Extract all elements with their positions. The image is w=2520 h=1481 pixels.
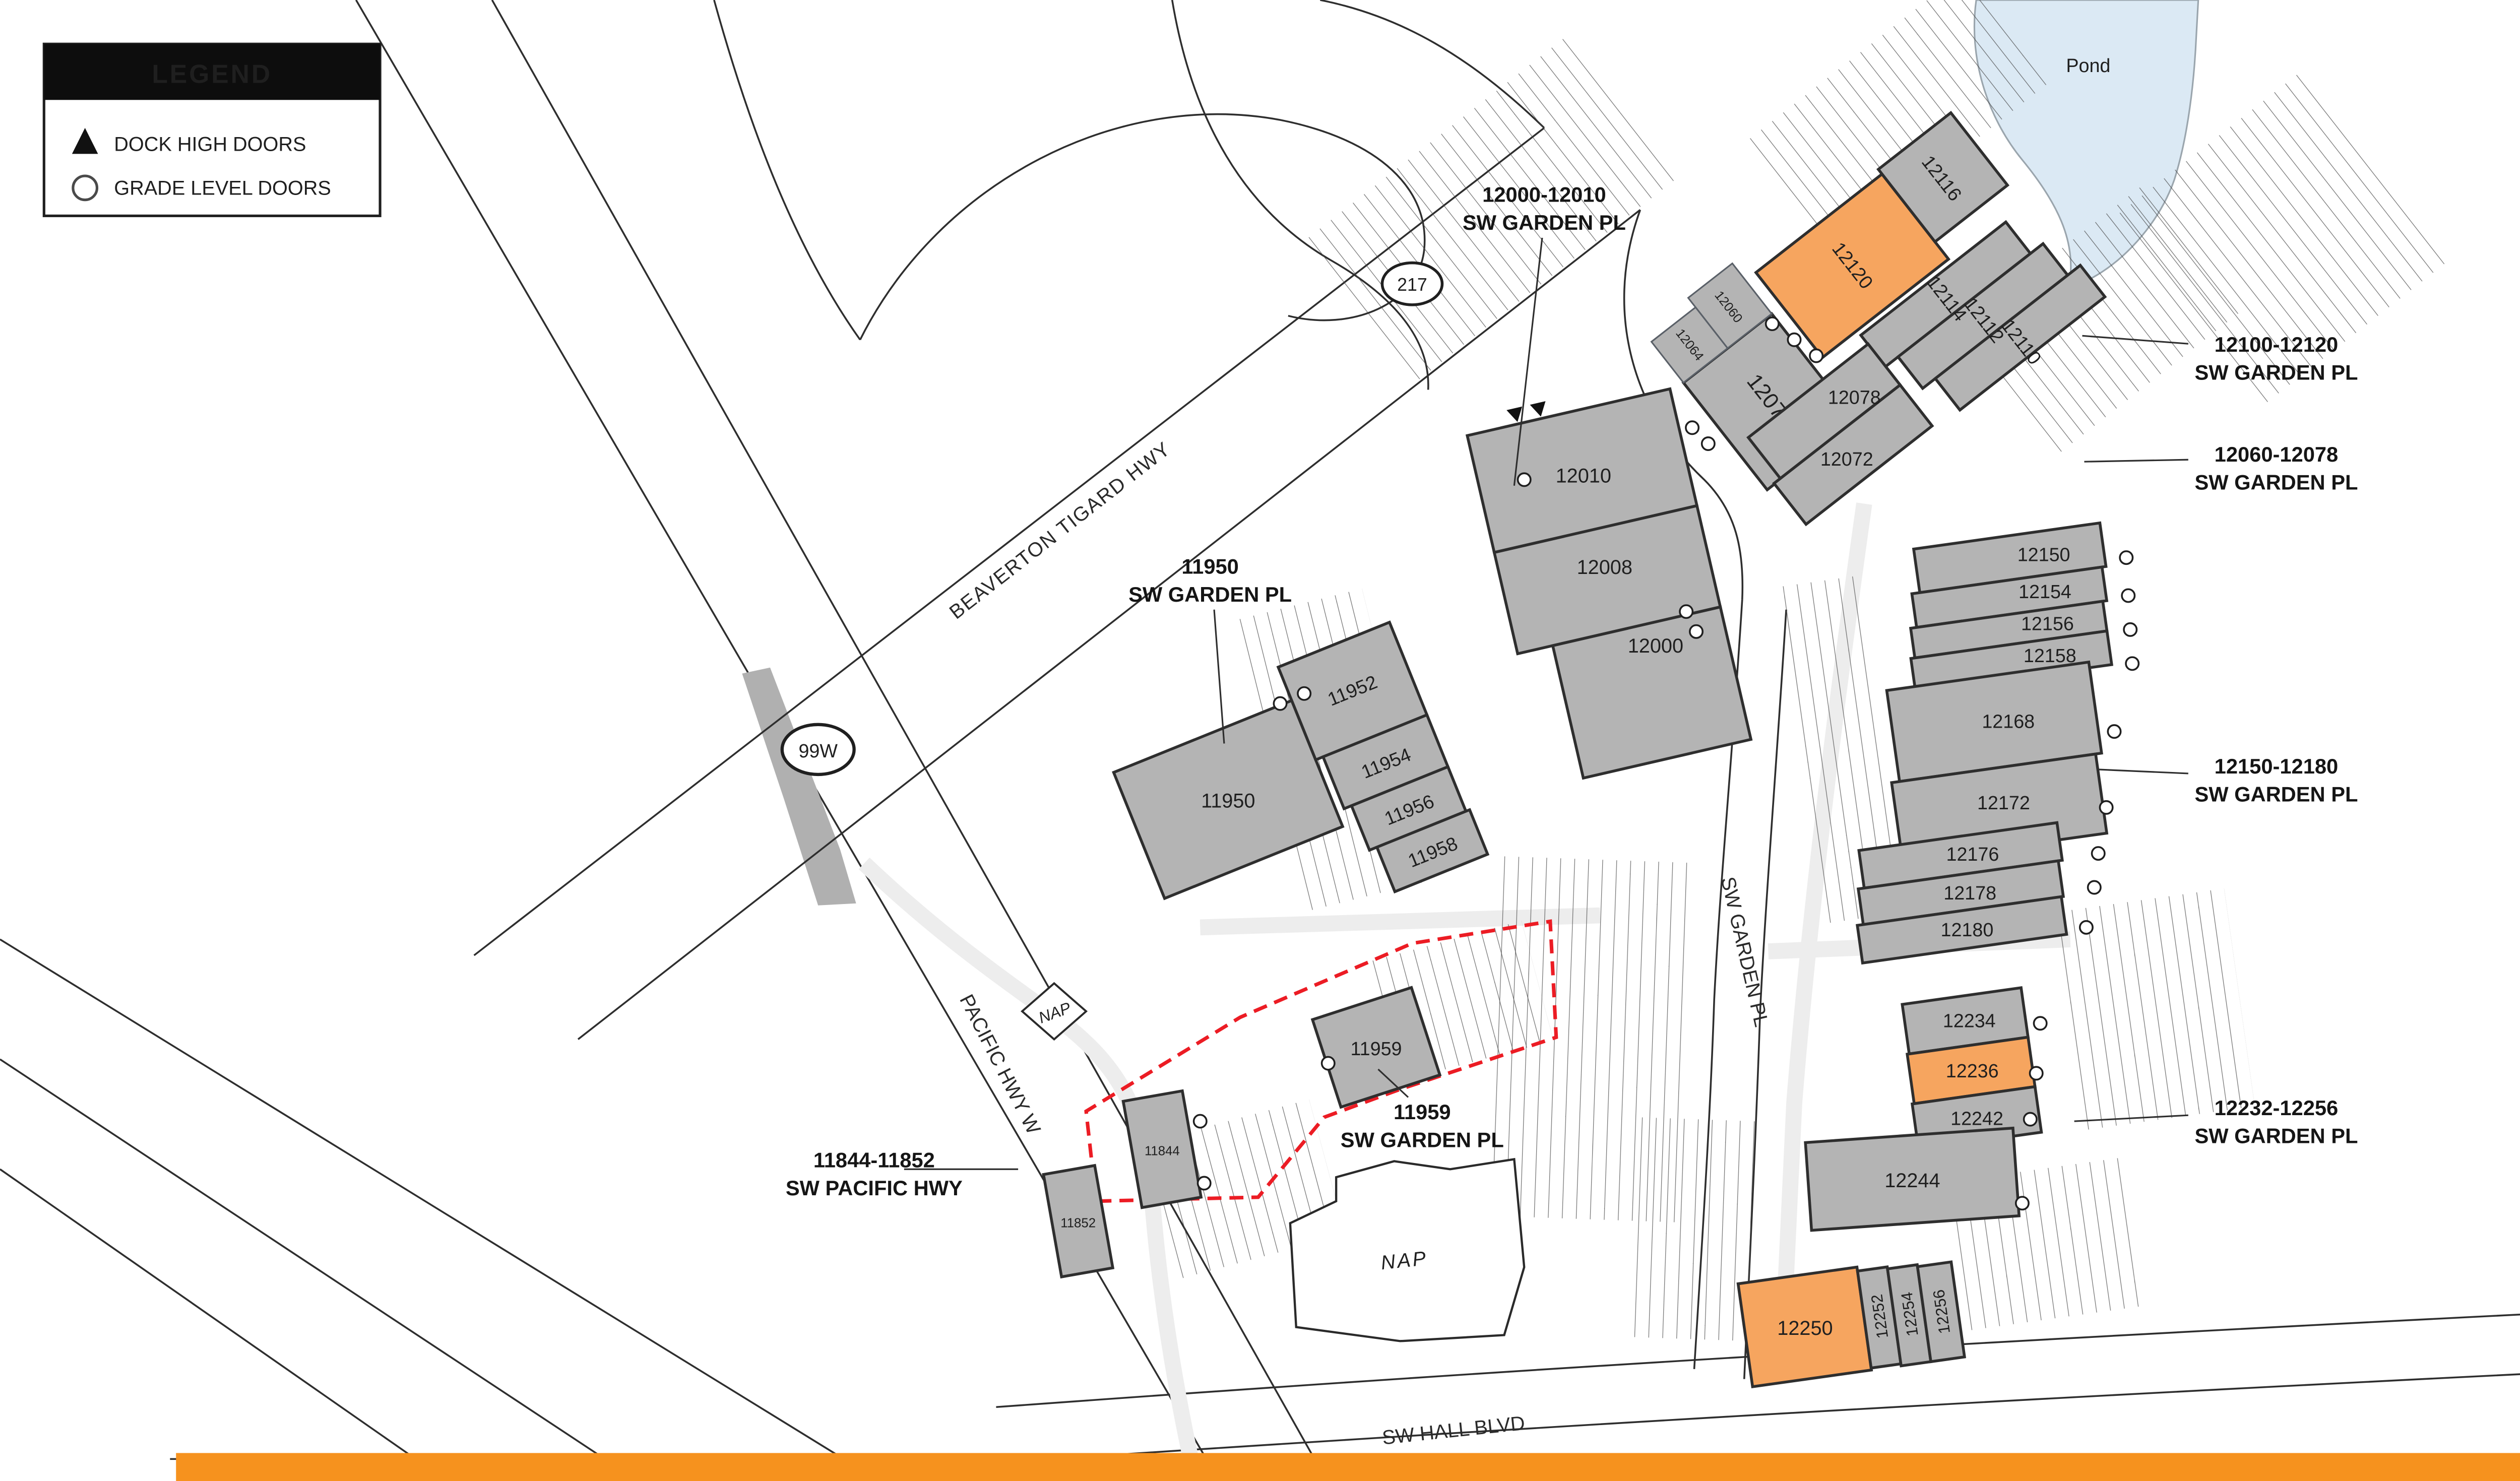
grade-level-door-icon <box>2030 1067 2042 1079</box>
unit-label: 11852 <box>1060 1216 1096 1230</box>
unit-label: 12078 <box>1828 387 1881 408</box>
parking-lot <box>1632 1117 1756 1341</box>
unit-label: 12010 <box>1556 465 1611 487</box>
grade-level-door-icon <box>1702 437 1715 450</box>
grade-level-door-icon <box>1788 334 1800 346</box>
shield-217-label: 217 <box>1397 275 1427 295</box>
grade-level-door-icon <box>1194 1115 1207 1127</box>
address-label: 12000-12010 <box>1482 183 1606 207</box>
legend-item-label: DOCK HIGH DOORS <box>114 133 306 155</box>
grade-level-door-icon <box>1766 317 1779 330</box>
unit-label: 12154 <box>2019 581 2071 602</box>
address-label: 12060-12078 <box>2215 442 2339 466</box>
unit-label: 12008 <box>1577 556 1632 578</box>
grade-level-door-icon <box>1298 687 1310 700</box>
unit-label: 11950 <box>1201 790 1255 812</box>
unit-label: 12180 <box>1940 919 1993 940</box>
shield-99w-label: 99W <box>798 740 838 761</box>
grade-level-door-icon <box>2122 589 2134 602</box>
unit-label: 11959 <box>1350 1038 1402 1059</box>
grade-level-door-icon <box>1690 625 1703 638</box>
highway-shield-217: 217 <box>1382 263 1442 305</box>
grade-level-door-icon <box>2034 1017 2046 1029</box>
grade-level-door-icon <box>2108 725 2120 738</box>
grade-level-door-icon <box>2120 551 2132 564</box>
grade-level-door-icon <box>2126 657 2138 670</box>
grade-level-circle-icon <box>73 176 97 200</box>
unit-label: 12242 <box>1950 1108 2003 1129</box>
unit-label: 11844 <box>1145 1144 1180 1158</box>
footer-accent-bar <box>176 1453 2520 1481</box>
unit-label: 12176 <box>1946 844 1999 865</box>
grade-level-door-icon <box>2080 921 2093 934</box>
grade-level-door-icon <box>2124 623 2136 636</box>
address-label: SW GARDEN PL <box>2194 471 2358 494</box>
unit-label: 12236 <box>1946 1060 1999 1081</box>
grade-level-door-icon <box>2024 1113 2037 1125</box>
address-label: SW PACIFIC HWY <box>786 1176 963 1200</box>
unit-label: 12172 <box>1977 792 2030 813</box>
unit-label: 12178 <box>1943 882 1996 904</box>
legend-item-label: GRADE LEVEL DOORS <box>114 177 331 200</box>
grade-level-door-icon <box>1274 697 1286 710</box>
building-12234-cluster: 12234 12236 12242 <box>1898 988 2041 1149</box>
grade-level-door-icon <box>2088 881 2101 893</box>
unit-label: 12158 <box>2024 645 2076 666</box>
address-label: SW GARDEN PL <box>1463 211 1626 234</box>
address-label: SW GARDEN PL <box>1341 1128 1504 1152</box>
site-plan-map: Pond NAP NAP 12120 12116 12114 1 <box>0 0 2520 1481</box>
address-label: SW GARDEN PL <box>1128 583 1292 606</box>
highway-shield-99w: 99W <box>782 725 854 775</box>
address-label: SW GARDEN PL <box>2194 782 2358 806</box>
grade-level-door-icon <box>1518 473 1530 486</box>
unit-label: 12150 <box>2018 544 2070 565</box>
address-label: 12232-12256 <box>2215 1096 2339 1120</box>
unit-label: 12156 <box>2021 613 2074 634</box>
grade-level-door-icon <box>2016 1197 2029 1209</box>
unit-label: 12244 <box>1884 1170 1940 1192</box>
address-label: 12150-12180 <box>2215 754 2339 778</box>
unit-label: 12072 <box>1820 448 1873 470</box>
unit-label: 12250 <box>1777 1317 1833 1339</box>
address-label: 11959 <box>1394 1100 1451 1124</box>
grade-level-door-icon <box>1810 349 1822 362</box>
grade-level-door-icon <box>2092 847 2105 860</box>
address-label: SW GARDEN PL <box>2194 361 2358 384</box>
address-label: 11950 <box>1181 554 1239 578</box>
unit-label: 12168 <box>1982 711 2035 732</box>
unit-label: 12234 <box>1943 1010 1996 1032</box>
address-label: SW GARDEN PL <box>2194 1124 2358 1148</box>
grade-level-door-icon <box>1322 1057 1335 1069</box>
grade-level-door-icon <box>1198 1177 1210 1189</box>
address-label: 12100-12120 <box>2215 333 2339 356</box>
pond-label: Pond <box>2066 55 2110 76</box>
grade-level-door-icon <box>2100 801 2112 814</box>
legend: LEGEND DOCK HIGH DOORS GRADE LEVEL DOORS <box>44 44 380 216</box>
building-12244: 12244 <box>1805 1128 2019 1231</box>
address-label: 11844-11852 <box>813 1148 935 1172</box>
grade-level-door-icon <box>1686 421 1698 434</box>
grade-level-door-icon <box>1680 605 1692 618</box>
unit-label: 12000 <box>1628 635 1683 657</box>
legend-title: LEGEND <box>152 59 272 89</box>
